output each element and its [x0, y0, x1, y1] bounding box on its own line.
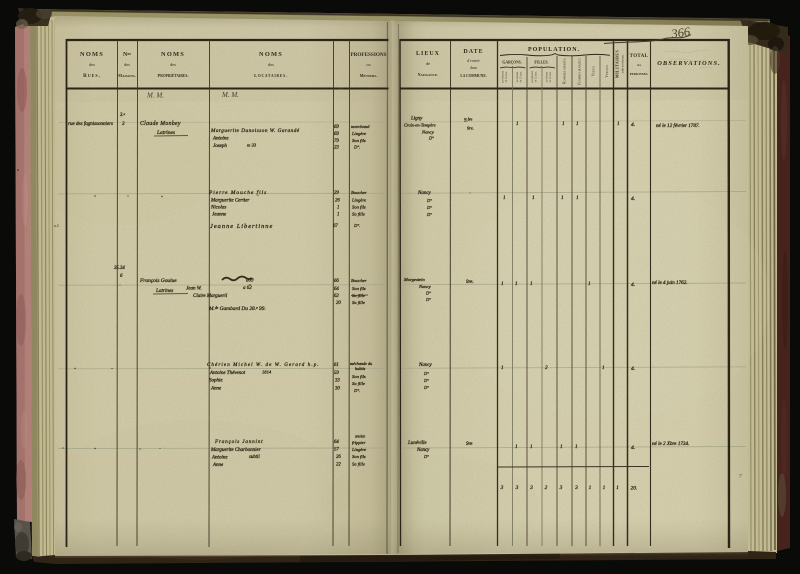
svg-text:3: 3 [574, 485, 578, 491]
svg-text:ages: ages [338, 86, 345, 90]
svg-text:1: 1 [530, 444, 533, 450]
svg-text:1: 1 [515, 281, 518, 287]
svg-text:1: 1 [337, 213, 339, 218]
svg-text:62: 62 [334, 294, 339, 299]
svg-text:79: 79 [334, 139, 339, 144]
svg-text:3: 3 [559, 485, 563, 491]
svg-text:actifs ou vétérans.: actifs ou vétérans. [622, 54, 625, 73]
svg-text:habits: habits [355, 366, 366, 371]
svg-text:Sa fille: Sa fille [352, 381, 365, 386]
svg-text:TOTAL: TOTAL [630, 54, 649, 59]
svg-text:François Goulue: François Goulue [139, 278, 177, 284]
svg-text:59: 59 [334, 371, 339, 376]
svg-text:Son fils: Son fils [352, 138, 366, 143]
svg-text:Boucher: Boucher [351, 190, 367, 195]
svg-text:Claude Monbey: Claude Monbey [140, 121, 181, 127]
svg-text:Marguerite Certier: Marguerite Certier [210, 199, 249, 204]
svg-text:Pierre Mouche fils: Pierre Mouche fils [208, 189, 267, 196]
svg-text:1: 1 [575, 444, 578, 450]
svg-text:Nancy: Nancy [417, 191, 432, 196]
svg-text:Nancy: Nancy [418, 284, 432, 289]
svg-text:de 12 ans.: de 12 ans. [505, 71, 508, 82]
svg-text:9re.: 9re. [466, 280, 474, 285]
svg-text:20.: 20. [631, 486, 638, 492]
svg-text:né le 12 février 1787.: né le 12 février 1787. [656, 122, 700, 129]
svg-text:1: 1 [603, 485, 606, 491]
svg-text:d'entrée: d'entrée [467, 58, 480, 63]
svg-text:Sa fille: Sa fille [352, 462, 365, 467]
svg-text:a 62: a 62 [243, 286, 252, 291]
svg-text:Son fils: Son fils [352, 454, 366, 459]
svg-text:57: 57 [334, 448, 339, 453]
svg-text:1: 1 [516, 121, 519, 127]
svg-text:D°: D° [428, 136, 434, 141]
svg-text:Nancy: Nancy [416, 448, 430, 453]
svg-text:ancien: ancien [355, 435, 365, 439]
svg-text:M. M.: M. M. [221, 91, 239, 99]
svg-text:1: 1 [616, 485, 619, 491]
svg-text:des: des [89, 62, 95, 67]
svg-text:Lunéville: Lunéville [407, 441, 427, 446]
svg-text:Marguerite Dunoisson W. Garand: Marguerite Dunoisson W. Garandé [210, 128, 300, 134]
svg-text:de: de [426, 61, 430, 66]
svg-text:Chérien Michel W. de W. Gerard: Chérien Michel W. de W. Gerard h.p. [207, 363, 320, 368]
svg-text:69: 69 [334, 132, 339, 137]
svg-text:des: des [170, 62, 176, 67]
svg-text:3: 3 [529, 485, 533, 491]
svg-text:rue des fagnissonniers: rue des fagnissonniers [68, 122, 113, 127]
svg-text:1: 1 [501, 281, 504, 287]
svg-text:30: 30 [335, 387, 340, 392]
svg-text:a.L: a.L [54, 223, 60, 228]
svg-text:de 12 ans.: de 12 ans. [519, 71, 522, 82]
svg-text:4.: 4. [631, 282, 635, 288]
svg-text:des: des [637, 63, 642, 67]
svg-text:3: 3 [515, 485, 519, 491]
svg-text:Son fils: Son fils [352, 374, 366, 379]
svg-text:PROFESSIONS: PROFESSIONS [350, 52, 386, 58]
svg-text:LOCATAIRES.: LOCATAIRES. [254, 73, 288, 78]
svg-text:67: 67 [333, 224, 338, 229]
svg-text:35.34: 35.34 [114, 266, 125, 271]
svg-text:D°.: D°. [353, 388, 360, 393]
svg-text:né le 4 juin 1762.: né le 4 juin 1762. [652, 280, 688, 286]
svg-text:4.: 4. [631, 196, 635, 202]
svg-text:PERSONNES.: PERSONNES. [630, 72, 649, 76]
svg-text:4.: 4. [631, 122, 635, 128]
svg-text:64: 64 [334, 287, 339, 292]
svg-text:2: 2 [545, 485, 548, 491]
svg-text:Son fils: Son fils [352, 286, 366, 291]
svg-text:NOMS: NOMS [161, 51, 185, 58]
svg-text:D°: D° [425, 291, 431, 296]
svg-text:D°: D° [426, 198, 432, 203]
svg-text:D°: D° [423, 454, 429, 459]
svg-text:m 33: m 33 [247, 143, 257, 148]
svg-text:GARÇONS.: GARÇONS. [502, 60, 522, 65]
svg-text:Antoine: Antoine [211, 456, 228, 461]
svg-text:Nicolas: Nicolas [210, 206, 226, 211]
svg-text:Sa fille: Sa fille [352, 300, 365, 305]
svg-text:1: 1 [561, 195, 564, 201]
svg-text:33: 33 [335, 379, 340, 384]
svg-text:3: 3 [122, 121, 125, 127]
svg-text:né le 2 Xbre 1734.: né le 2 Xbre 1734. [652, 441, 689, 447]
svg-text:1: 1 [501, 365, 504, 371]
svg-text:D°: D° [423, 378, 429, 383]
svg-text:61: 61 [334, 363, 339, 368]
svg-text:29: 29 [334, 191, 339, 196]
svg-text:Joseph: Joseph [213, 144, 227, 149]
svg-text:MAISONS.: MAISONS. [118, 73, 135, 78]
svg-text:Anne: Anne [212, 463, 224, 468]
svg-text:Nancy: Nancy [421, 130, 435, 135]
svg-text:26: 26 [336, 455, 341, 460]
svg-text:LA COMMUNE.: LA COMMUNE. [460, 74, 486, 78]
svg-text:1: 1 [530, 281, 533, 287]
svg-text:4.: 4. [631, 445, 635, 451]
svg-text:a69: a69 [246, 279, 254, 284]
svg-text:des: des [268, 62, 274, 67]
svg-text:MILITAIRES: MILITAIRES [615, 50, 620, 79]
svg-text:1: 1 [503, 195, 506, 201]
svg-text:subtil: subtil [249, 455, 260, 460]
svg-text:4.: 4. [631, 366, 635, 372]
svg-text:D°.: D°. [353, 145, 360, 150]
svg-text:NOMS: NOMS [80, 51, 104, 58]
svg-text:VEUVES.: VEUVES. [605, 64, 609, 77]
svg-text:Ligny: Ligny [410, 117, 423, 122]
svg-text:FILLES.: FILLES. [534, 60, 548, 65]
svg-text:Latrines: Latrines [156, 130, 175, 136]
svg-text:1: 1 [602, 365, 605, 371]
svg-text:69: 69 [334, 125, 339, 130]
svg-text:Anne: Anne [210, 387, 222, 392]
svg-text:9re.: 9re. [467, 126, 474, 131]
svg-text:1: 1 [337, 206, 339, 211]
svg-text:NOMS: NOMS [259, 51, 283, 58]
svg-text:dans: dans [470, 66, 477, 70]
svg-text:Nancy: Nancy [418, 363, 433, 368]
svg-text:HOMMES MARIÉS.: HOMMES MARIÉS. [562, 58, 567, 85]
svg-text:marchand: marchand [351, 124, 370, 129]
svg-text:1: 1 [576, 121, 579, 127]
svg-text:VEUFS.: VEUFS. [592, 65, 596, 76]
svg-text:D°: D° [425, 297, 431, 302]
svg-text:LIEUX: LIEUX [416, 51, 440, 57]
svg-text:de 12 ans.: de 12 ans. [534, 71, 537, 82]
svg-text:D°: D° [426, 205, 432, 210]
svg-text:Claire Margueril: Claire Margueril [193, 294, 228, 299]
svg-text:Croix-en-Tempère: Croix-en-Tempère [404, 123, 436, 128]
svg-text:Lingère: Lingère [351, 198, 366, 203]
svg-text:de 12 ans.: de 12 ans. [549, 71, 552, 82]
svg-text:FEMMES MARIÉES.: FEMMES MARIÉES. [577, 57, 582, 85]
svg-text:23: 23 [334, 146, 339, 151]
svg-text:22: 22 [336, 463, 341, 468]
svg-text:D°: D° [426, 212, 432, 217]
svg-text:Latrines: Latrines [155, 288, 173, 294]
svg-text:66: 66 [334, 279, 339, 284]
svg-text:Marguerite Charbonnier: Marguerite Charbonnier [210, 448, 261, 453]
svg-text:1: 1 [532, 195, 535, 201]
svg-text:Son fils: Son fils [352, 205, 366, 210]
svg-text:Lingère: Lingère [351, 447, 366, 452]
svg-text:20: 20 [336, 301, 341, 306]
svg-text:Antoine: Antoine [212, 137, 229, 142]
svg-text:1: 1 [588, 281, 591, 287]
svg-text:Morgestein: Morgestein [403, 277, 425, 282]
svg-text:OBSERVATIONS.: OBSERVATIONS. [657, 60, 721, 67]
svg-text:2: 2 [545, 365, 548, 371]
svg-text:MÉTIERS.: MÉTIERS. [360, 73, 378, 78]
svg-text:Sophie: Sophie [209, 379, 223, 384]
svg-text:Jean W.: Jean W. [186, 287, 202, 292]
svg-text:Antoine Thévenot: Antoine Thévenot [209, 371, 246, 376]
svg-text:366: 366 [669, 24, 691, 41]
svg-text:Jeanne: Jeanne [212, 213, 227, 218]
svg-text:9re: 9re [466, 442, 473, 447]
svg-text:D°: D° [423, 385, 429, 390]
svg-text:Lingère: Lingère [351, 131, 366, 136]
svg-text:1: 1 [617, 121, 620, 127]
svg-text:PROPRIÉTAIRES.: PROPRIÉTAIRES. [158, 73, 189, 78]
svg-text:1: 1 [562, 121, 565, 127]
svg-text:Boucher: Boucher [351, 278, 367, 283]
svg-text:DATE: DATE [463, 49, 483, 55]
svg-text:Sa fille: Sa fille [352, 212, 365, 217]
svg-text:des: des [124, 62, 130, 67]
svg-text:François Jannint: François Jannint [214, 439, 263, 445]
svg-text:1: 1 [560, 444, 563, 450]
svg-text:64: 64 [334, 440, 339, 445]
svg-text:1: 1 [515, 444, 518, 450]
svg-text:Jeanne Libertinne: Jeanne Libertinne [210, 223, 273, 230]
svg-text:3: 3 [500, 485, 504, 491]
svg-text:D°.: D°. [353, 223, 360, 228]
svg-text:D°: D° [423, 371, 429, 376]
svg-text:26: 26 [335, 199, 340, 204]
svg-text:POPULATION.: POPULATION. [528, 47, 580, 53]
svg-text:1: 1 [589, 485, 592, 491]
svg-text:NAISSANCE.: NAISSANCE. [418, 73, 438, 77]
svg-text:frippier: frippier [352, 440, 366, 445]
svg-text:1814: 1814 [262, 370, 272, 375]
svg-text:M. M.: M. M. [146, 92, 164, 100]
svg-text:1: 1 [576, 195, 579, 201]
